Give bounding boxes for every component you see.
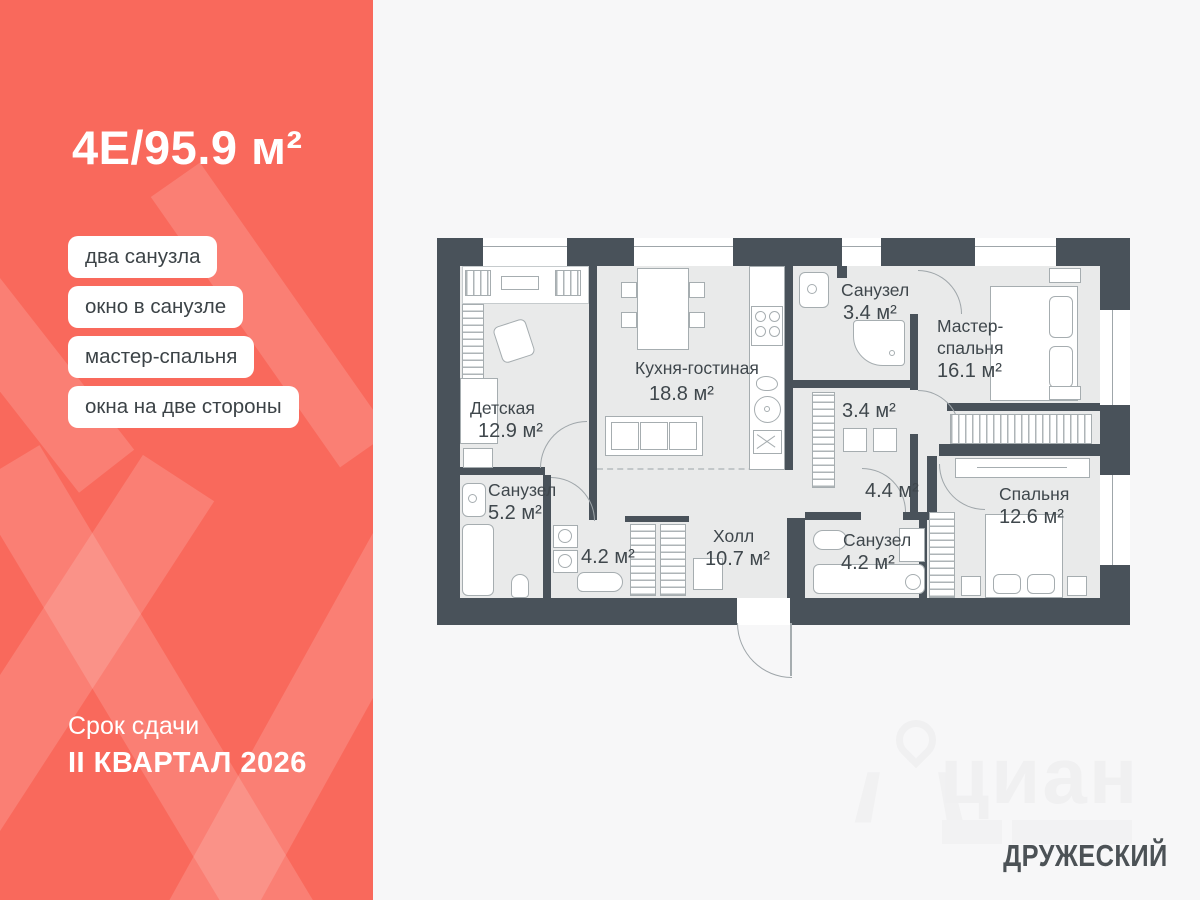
wall-interior xyxy=(589,266,597,520)
floor-plan: Детская 12.9 м² Кухня-гостиная 18.8 м² С… xyxy=(437,238,1130,628)
room-area: 12.9 м² xyxy=(478,420,543,443)
dining-table-icon xyxy=(637,268,689,350)
wall-interior xyxy=(793,380,910,388)
shelf-icon xyxy=(555,270,581,296)
feature-tag: окна на две стороны xyxy=(68,386,299,428)
promo-panel: 4Е/95.9 м² два санузла окно в санузле ма… xyxy=(0,0,373,900)
watermark-brand: циан xyxy=(940,730,1139,822)
pillow-icon xyxy=(993,574,1021,594)
drain-icon xyxy=(889,350,895,356)
closet-icon xyxy=(950,414,1092,444)
window-right-2 xyxy=(1100,475,1130,565)
room-area: 3.4 м² xyxy=(842,400,896,423)
window-top-2 xyxy=(634,238,733,266)
feature-tag: мастер-спальня xyxy=(68,336,254,378)
window-top-3 xyxy=(842,238,881,266)
wardrobe-icon xyxy=(929,512,955,598)
wall-right xyxy=(1100,238,1130,625)
desk-icon xyxy=(501,276,539,290)
room-name: Холл xyxy=(713,526,754,548)
room-name: Санузел xyxy=(843,530,911,552)
wall-interior xyxy=(910,314,918,390)
room-name: Санузел xyxy=(488,480,556,502)
wall-interior xyxy=(787,518,805,598)
wall-interior xyxy=(927,456,937,512)
chair-icon xyxy=(621,312,637,328)
developer-logo: ДРУЖЕСКИЙ xyxy=(1003,838,1168,874)
room-area: 10.7 м² xyxy=(705,548,770,571)
shelf-icon xyxy=(465,270,491,296)
wall-left xyxy=(437,238,460,625)
pillow-icon xyxy=(1027,574,1055,594)
wall-interior xyxy=(460,467,545,475)
window-glass xyxy=(1112,310,1113,405)
window-top-1 xyxy=(483,238,567,266)
washer-icon xyxy=(873,428,897,452)
pillow-icon xyxy=(1049,346,1073,388)
chair-icon xyxy=(621,282,637,298)
apartment-title: 4Е/95.9 м² xyxy=(72,120,303,175)
small-sink-icon xyxy=(756,376,778,391)
chair-icon xyxy=(689,282,705,298)
wall-stub xyxy=(837,266,847,278)
deadline-label: Срок сдачи xyxy=(68,712,199,741)
window-right-1 xyxy=(1100,310,1130,405)
toilet-icon xyxy=(905,574,921,590)
room-area: 4.2 м² xyxy=(841,552,895,575)
feature-tag: окно в санузле xyxy=(68,286,243,328)
room-name: Спальня xyxy=(999,484,1069,506)
room-area: 16.1 м² xyxy=(937,360,1002,383)
wardrobe-icon xyxy=(660,524,686,596)
wall-interior xyxy=(805,512,861,520)
room-name: Мастер-спальня xyxy=(937,316,1029,360)
wall-interior xyxy=(939,444,1100,456)
room-area: 5.2 м² xyxy=(488,502,542,525)
burner-icon xyxy=(769,326,780,337)
nightstand-icon xyxy=(1067,576,1087,596)
window-glass xyxy=(634,246,733,247)
washer-icon xyxy=(843,428,867,452)
toilet-icon xyxy=(511,574,529,598)
washer-door-icon xyxy=(558,529,572,543)
feature-tag: два санузла xyxy=(68,236,217,278)
room-area: 4.2 м² xyxy=(581,546,635,569)
drain-icon xyxy=(764,406,770,412)
chair-icon xyxy=(689,312,705,328)
room-name: Санузел xyxy=(841,280,909,302)
window-glass xyxy=(483,246,567,247)
drain-icon xyxy=(468,494,477,503)
room-area: 12.6 м² xyxy=(999,506,1064,529)
window-top-4 xyxy=(975,238,1056,266)
deadline-value: II КВАРТАЛ 2026 xyxy=(68,747,307,780)
burner-icon xyxy=(769,311,780,322)
entry-door-leaf xyxy=(790,623,792,676)
bathtub-icon xyxy=(462,524,494,596)
burner-icon xyxy=(755,311,766,322)
pillow-icon xyxy=(1049,296,1073,338)
wall-interior xyxy=(785,266,793,470)
wall-interior xyxy=(947,403,1100,411)
sofa-cushion xyxy=(669,422,697,450)
wall-interior xyxy=(625,516,689,522)
window-glass xyxy=(842,246,881,247)
room-area: 4.4 м² xyxy=(865,480,919,503)
drain-icon xyxy=(807,284,817,294)
sofa-cushion xyxy=(640,422,668,450)
nightstand-icon xyxy=(961,576,981,596)
room-area: 18.8 м² xyxy=(649,383,714,406)
wardrobe-icon xyxy=(812,392,835,488)
nightstand-icon xyxy=(1049,268,1081,283)
room-name: Кухня-гостиная xyxy=(635,358,759,380)
entry-door-opening xyxy=(737,598,790,625)
sofa-cushion xyxy=(611,422,639,450)
dresser-line xyxy=(977,467,1067,468)
washbasin-icon xyxy=(813,530,847,550)
washer-door-icon xyxy=(558,554,572,568)
pin-icon xyxy=(888,712,945,769)
nightstand-icon xyxy=(463,448,493,468)
entry-door-arc xyxy=(737,623,792,678)
room-name: Детская xyxy=(470,398,535,420)
nightstand-icon xyxy=(1049,386,1081,400)
window-glass xyxy=(975,246,1056,247)
window-glass xyxy=(1112,475,1113,565)
room-area: 3.4 м² xyxy=(843,302,897,325)
burner-icon xyxy=(755,326,766,337)
bench-icon xyxy=(577,572,623,592)
feature-tag-list: два санузла окно в санузле мастер-спальн… xyxy=(68,236,299,436)
watermark-blur xyxy=(942,820,1002,844)
